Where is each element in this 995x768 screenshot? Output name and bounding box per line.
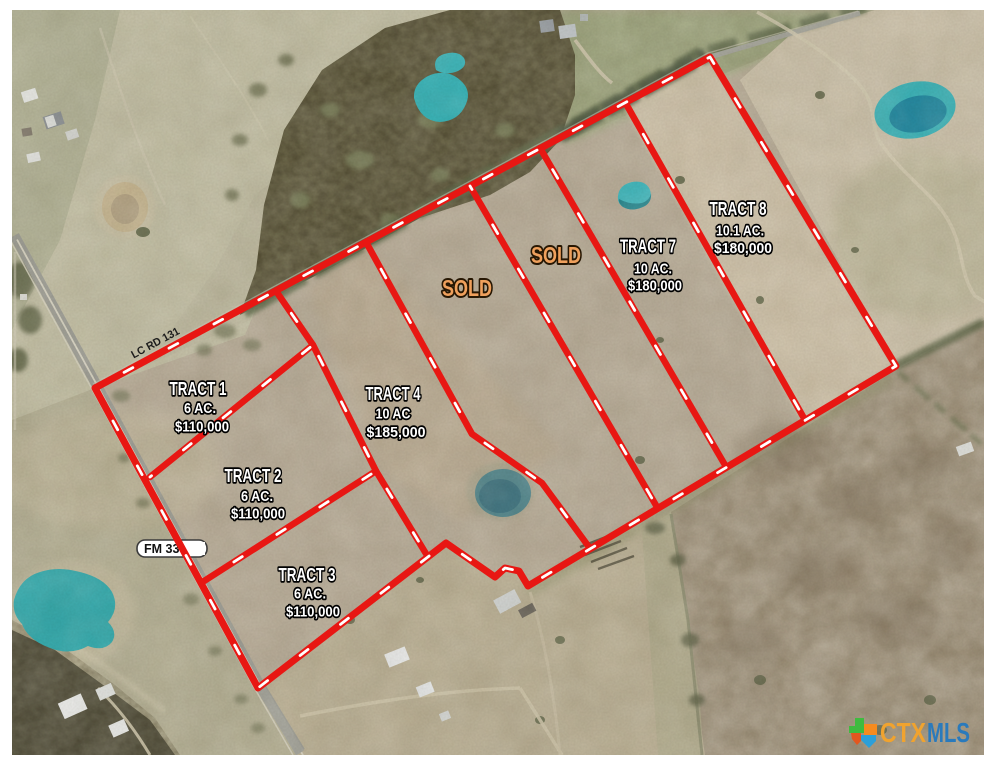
svg-text:$110,000: $110,000	[231, 506, 285, 523]
svg-text:6 AC.: 6 AC.	[184, 401, 216, 417]
svg-text:6 AC.: 6 AC.	[241, 489, 273, 505]
svg-text:TRACT 8: TRACT 8	[710, 199, 767, 219]
svg-text:10 AC: 10 AC	[376, 407, 411, 423]
svg-text:TRACT 3: TRACT 3	[279, 565, 336, 585]
svg-text:MLS: MLS	[927, 717, 970, 748]
svg-text:$110,000: $110,000	[175, 419, 229, 436]
svg-text:SOLD: SOLD	[442, 275, 492, 301]
svg-text:10.1 AC.: 10.1 AC.	[716, 223, 764, 240]
svg-text:$180,000: $180,000	[714, 241, 772, 257]
svg-text:$110,000: $110,000	[286, 604, 340, 621]
svg-text:TRACT 2: TRACT 2	[225, 466, 282, 486]
svg-text:TRACT 1: TRACT 1	[170, 379, 227, 399]
svg-text:6 AC.: 6 AC.	[294, 587, 326, 603]
svg-text:SOLD: SOLD	[531, 242, 581, 268]
svg-text:$180,000: $180,000	[628, 279, 682, 295]
svg-text:TRACT 7: TRACT 7	[620, 237, 676, 257]
svg-text:10 AC.: 10 AC.	[634, 261, 672, 278]
svg-text:FM 33: FM 33	[144, 542, 179, 556]
svg-text:$185,000: $185,000	[367, 424, 426, 441]
svg-text:CTX: CTX	[880, 717, 926, 748]
svg-text:TRACT 4: TRACT 4	[366, 384, 421, 404]
